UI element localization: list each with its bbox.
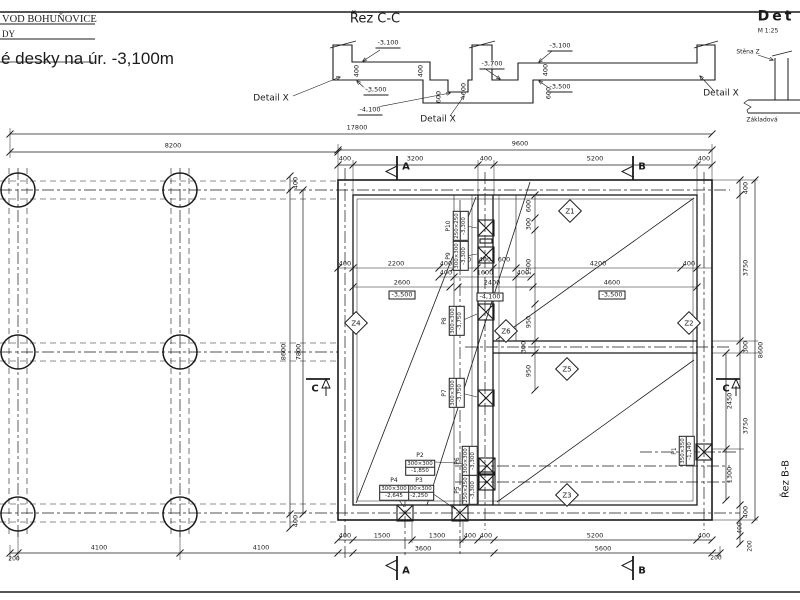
dim-label: 600 xyxy=(546,87,553,99)
dim-label: 9600 xyxy=(512,141,529,148)
dim-label: 1600 xyxy=(477,270,494,277)
dim-label: 400 xyxy=(293,515,300,527)
detail-scale: M 1:25 xyxy=(758,28,779,35)
column-tag-p2: P2300×300-1,850 xyxy=(405,453,435,476)
column-tag-p4: P4300×300-2,645 xyxy=(379,478,409,501)
dim-label: 5200 xyxy=(587,533,604,540)
dim-label: 200 xyxy=(710,555,721,562)
company-name: VOD BOHUŇOVICE xyxy=(0,13,170,27)
dim-label: 400 xyxy=(480,533,492,540)
column-level: -3,300 xyxy=(469,476,477,504)
column-size: 300×300 xyxy=(462,447,469,475)
column-level: -3,750 xyxy=(456,379,464,407)
level-label: -3,100 xyxy=(548,43,573,52)
dim-label: 400 xyxy=(480,156,492,163)
detail-callout: Detail X xyxy=(253,96,289,103)
dim-label: 400 xyxy=(737,522,744,533)
level-label: -3,700 xyxy=(480,61,505,70)
column-size: 250×250 xyxy=(453,212,460,240)
column-level: -3,300 xyxy=(460,212,468,240)
dim-label: 400 xyxy=(339,156,351,163)
dim-label: 3750 xyxy=(743,260,750,277)
zone-label: Z5 xyxy=(560,362,575,377)
dim-label: 5200 xyxy=(587,156,604,163)
dim-label: 400 xyxy=(464,533,476,540)
zone-label: Z3 xyxy=(560,488,575,503)
column-level: -2,645 xyxy=(380,492,408,500)
dim-label: 400 xyxy=(743,506,750,518)
dim-label: 300 xyxy=(743,341,750,353)
dim-label: 1500 xyxy=(374,533,391,540)
column-size: 300×300 xyxy=(406,460,434,467)
dim-label: 2600 xyxy=(394,280,411,287)
section-marker-label: B xyxy=(638,568,646,575)
column-size: 300×300 xyxy=(405,485,433,492)
dim-label: 400 xyxy=(339,533,351,540)
dim-label: 4600 xyxy=(604,280,621,287)
dim-label: 5600 xyxy=(595,546,612,553)
column-level: -1,140 xyxy=(686,437,694,465)
section-bb-label: Řez B-B xyxy=(783,460,790,498)
dim-label: 200 xyxy=(747,540,754,551)
drawing-linework xyxy=(0,0,800,600)
dim-label: 300 xyxy=(521,341,528,353)
section-marker-label: A xyxy=(402,568,410,575)
dim-label: 400 xyxy=(354,65,361,77)
level-label: -3,100 xyxy=(376,40,401,49)
section-marker-label: C xyxy=(722,386,729,393)
dim-label: 17800 xyxy=(347,125,368,132)
dim-label: 300 xyxy=(526,218,533,230)
column-size: 300×300 xyxy=(449,307,456,335)
level-label: -4,100 xyxy=(477,293,504,302)
dim-label: 2450 xyxy=(727,393,734,410)
column-tag-p9: P9300×300-3,300 xyxy=(446,241,469,271)
column-size: 350×350 xyxy=(679,437,686,465)
dim-label: 8200 xyxy=(165,143,182,150)
section-marker-label: B xyxy=(638,164,646,171)
dim-label: 950 xyxy=(526,316,533,328)
dim-label: 600 xyxy=(461,83,468,95)
zone-label: Z2 xyxy=(682,316,697,331)
dim-label: 400 xyxy=(698,156,710,163)
dim-label: 600 xyxy=(498,257,510,264)
base-slab-label: Základová xyxy=(746,117,777,124)
dim-label: 4100 xyxy=(91,545,108,552)
drawing-title: é desky na úr. -3,100m xyxy=(0,42,170,69)
zone-label: Z1 xyxy=(563,204,578,219)
column-tag-p10: P10250×250-3,300 xyxy=(446,211,469,241)
dim-label: 4100 xyxy=(253,545,270,552)
column-level: -3,300 xyxy=(460,242,468,270)
dim-label: 3600 xyxy=(415,546,432,553)
drawing-canvas: VOD BOHUŇOVICE DY é desky na úr. -3,100m… xyxy=(0,0,800,600)
dim-label: 400 xyxy=(418,65,425,77)
section-marker-label: A xyxy=(402,164,410,171)
level-label: -3,500 xyxy=(364,87,389,96)
level-label: -3,500 xyxy=(389,291,416,300)
dim-label: 400 xyxy=(698,533,710,540)
title-block: VOD BOHUŇOVICE DY é desky na úr. -3,100m xyxy=(0,13,170,69)
column-size: 250×250 xyxy=(462,476,469,504)
column-tag-p5: P5250×250-3,300 xyxy=(455,475,478,505)
column-tag-p1: P1350×350-1,140 xyxy=(672,436,695,466)
section-marker-label: C xyxy=(311,386,318,393)
dim-label: 950 xyxy=(526,365,533,377)
zone-label: Z4 xyxy=(349,316,364,331)
title-block-row2: DY xyxy=(0,27,170,42)
dim-label: 400 xyxy=(543,64,550,76)
dim-label: 4200 xyxy=(590,261,607,268)
detail-callout: Detail X xyxy=(420,117,456,124)
dim-label: 2400 xyxy=(484,280,501,287)
column-tag-p8: P8300×300-3,750 xyxy=(442,306,465,336)
dim-label: 400 xyxy=(479,257,491,264)
dim-label: 600 xyxy=(526,200,533,212)
dim-label: 400 xyxy=(339,261,351,268)
level-label: -4,100 xyxy=(358,107,383,116)
section-cc-title: Řez C-C xyxy=(350,16,400,23)
dim-label: 7800 xyxy=(296,344,303,361)
detail-callout: Detail X xyxy=(703,91,739,98)
dim-label: 8600 xyxy=(758,342,765,359)
column-level: -3,750 xyxy=(456,307,464,335)
dim-label: 1900 xyxy=(526,259,533,276)
dim-label: 2200 xyxy=(388,261,405,268)
zone-label: Z6 xyxy=(499,324,514,339)
dim-label: 8600 xyxy=(281,344,288,361)
dim-label: 400 xyxy=(683,261,695,268)
dim-label: 600 xyxy=(436,91,443,103)
dim-label: 200 xyxy=(8,556,19,563)
dim-label: 400 xyxy=(293,177,300,189)
dim-label: 1300 xyxy=(727,467,734,484)
wall-label: Stěna Z xyxy=(736,49,759,56)
column-size: 300×300 xyxy=(380,485,408,492)
detail-title: Det xyxy=(758,14,795,21)
dim-label: 400 xyxy=(743,182,750,194)
column-size: 300×300 xyxy=(449,379,456,407)
column-level: -2,250 xyxy=(405,492,433,500)
column-level: -1,850 xyxy=(406,467,434,475)
dim-label: 3750 xyxy=(743,418,750,435)
dim-label: 1300 xyxy=(429,533,446,540)
level-label: -3,500 xyxy=(599,291,626,300)
column-tag-p6: P6300×300-3,300 xyxy=(455,446,478,476)
column-tag-p7: P7300×300-3,750 xyxy=(442,378,465,408)
column-size: 300×300 xyxy=(453,242,460,270)
column-level: -3,300 xyxy=(469,447,477,475)
